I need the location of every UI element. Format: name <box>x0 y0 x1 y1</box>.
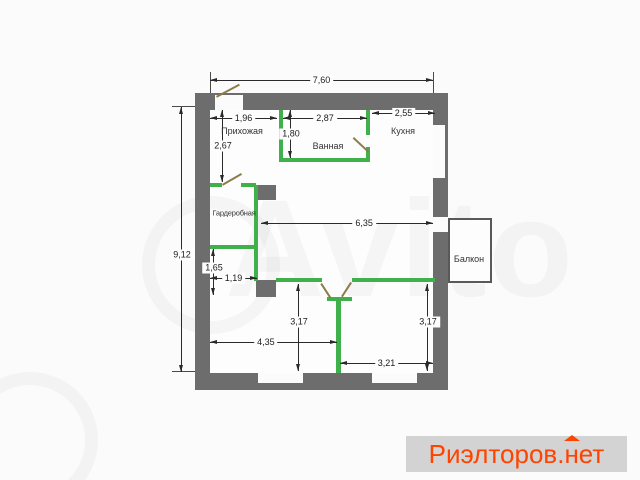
entrance-door-opening <box>215 95 243 110</box>
dimension-total-height: 9,12 <box>181 107 182 372</box>
brand-prefix: Риэлторов. <box>429 439 565 469</box>
brand-letter-n: н <box>564 441 578 467</box>
wall-pier-upper <box>256 185 276 200</box>
room-label-balcony: Балкон <box>454 254 484 264</box>
dimension-living-width: 6,35 <box>261 223 433 224</box>
room-label-wardrobe: Гардеробная <box>212 209 255 218</box>
extension-line <box>433 72 434 93</box>
dimension-bathroom-width: 2,87 <box>283 118 367 119</box>
extension-line <box>210 72 211 93</box>
dimension-room-left-width: 4,35 <box>210 342 337 343</box>
bathroom-wall-right-upper <box>366 110 370 135</box>
dimension-bathroom-depth: 1,80 <box>290 110 291 158</box>
dimension-label: 2,67 <box>211 141 235 152</box>
window-opening-left <box>258 373 303 383</box>
watermark-ring-icon <box>0 372 98 480</box>
dimension-room-left-height: 3,17 <box>298 284 299 371</box>
wardrobe-wall-right <box>254 185 258 281</box>
hallway-wall-left-segment <box>210 183 222 187</box>
dimension-label: 1,80 <box>279 129 303 140</box>
balcony-outline <box>448 218 492 283</box>
living-wall-left-segment <box>276 278 322 282</box>
window-opening-right <box>372 373 417 383</box>
dimension-label: 4,35 <box>254 337 278 348</box>
dimension-hallway-depth: 2,67 <box>222 110 223 182</box>
living-wall-right-segment <box>352 278 435 282</box>
dimension-label: 6,35 <box>352 218 376 229</box>
dimension-hallway-width: 1,96 <box>210 118 277 119</box>
house-roof-icon <box>564 435 580 441</box>
dimension-total-width: 7,60 <box>210 80 433 81</box>
wardrobe-wall-bottom <box>210 245 258 249</box>
room-label-bathroom: Ванная <box>313 141 344 151</box>
dimension-label: 7,60 <box>310 75 334 86</box>
room-label-kitchen: Кухня <box>391 126 415 136</box>
brand-banner: Риэлторов.нет <box>406 436 627 472</box>
dimension-kitchen-width: 2,55 <box>372 113 435 114</box>
dimension-room-right-height: 3,17 <box>427 284 428 371</box>
balcony-door-opening <box>433 217 448 232</box>
extension-line <box>172 371 195 372</box>
dimension-label: 3,17 <box>287 317 311 328</box>
floor-plan-image: Avito 7,60 9,12 1,96 2,87 2,55 <box>0 0 640 480</box>
kitchen-window-opening <box>433 125 445 178</box>
dimension-label: 3,21 <box>375 358 399 369</box>
dimension-label: 9,12 <box>170 250 194 261</box>
extension-line <box>172 106 195 107</box>
dimension-label: 2,55 <box>392 108 416 119</box>
dimension-label: 3,17 <box>416 317 440 328</box>
dimension-label: 1,96 <box>232 113 256 124</box>
brand-text: Риэлторов.нет <box>429 441 605 467</box>
wall-left <box>195 93 210 373</box>
room-label-hallway: Прихожая <box>221 126 263 136</box>
dimension-room-right-width: 3,21 <box>340 363 433 364</box>
brand-suffix: ет <box>579 439 605 469</box>
bathroom-wall-bottom <box>279 158 370 162</box>
dimension-label: 1,19 <box>222 273 246 284</box>
dimension-closet-width: 1,19 <box>210 278 257 279</box>
avito-watermark: Avito <box>225 170 575 329</box>
wall-pier-lower <box>256 280 276 297</box>
dimension-closet-height: 1,65 <box>213 249 214 295</box>
dimension-label: 2,87 <box>313 113 337 124</box>
